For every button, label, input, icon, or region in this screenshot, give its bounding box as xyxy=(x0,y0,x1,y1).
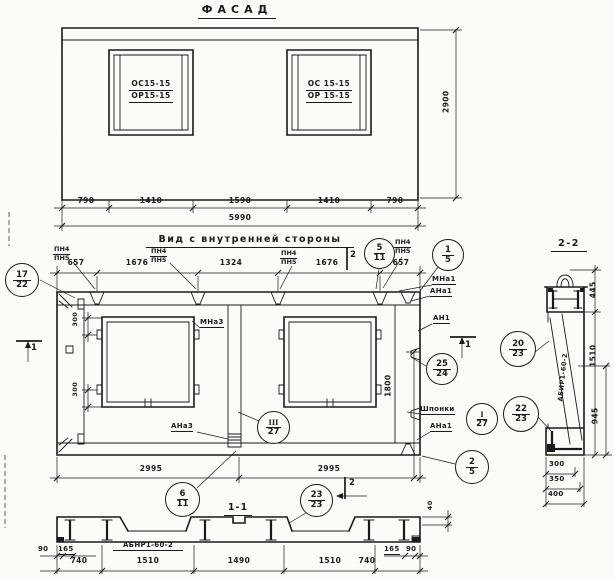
callout-bottom: 23 xyxy=(311,501,323,510)
callout-5-11: 5 11 xyxy=(364,238,395,269)
dim-90-right: 90 xyxy=(406,546,416,553)
facade-title: ФАСАД xyxy=(198,4,276,19)
label-ana3: АНа3 xyxy=(171,423,193,432)
cut-marker-2-bottom: 2 xyxy=(349,479,355,488)
callout-20-23: 20 23 xyxy=(500,331,536,367)
callout-17-22: 17 22 xyxy=(5,263,39,297)
margin-dashes xyxy=(5,212,9,528)
section-2-2-title: 2-2 xyxy=(551,239,587,252)
callout-bottom: 11 xyxy=(374,254,386,263)
callout-bottom: 27 xyxy=(476,420,488,429)
anchor-label-pn-2: ПН4 ПН5 xyxy=(150,248,167,265)
callout-top: 17 xyxy=(13,271,31,281)
dim-165-right: 165 xyxy=(384,546,400,555)
callout-top: 1 xyxy=(442,246,454,256)
callout-I-27: I 27 xyxy=(466,403,498,435)
callout-bottom: 23 xyxy=(512,350,524,359)
cut-marker-1-right: 1 xyxy=(465,341,471,350)
callout-bottom: 23 xyxy=(515,415,527,424)
callout-bottom: 24 xyxy=(436,370,448,379)
callout-bottom: 27 xyxy=(268,428,280,437)
inner-top-dim-4: 1676 xyxy=(312,259,342,267)
inner-top-dim-2: 1676 xyxy=(122,259,152,267)
callout-bottom: 22 xyxy=(16,281,28,290)
label-ana1-bottom: АНа1 xyxy=(430,423,452,432)
callout-bottom: 5 xyxy=(469,468,475,477)
anchor-label-pn-3: ПН4 ПН5 xyxy=(280,250,297,267)
inner-top-dim-1: 657 xyxy=(61,259,91,267)
callout-top: I xyxy=(477,410,486,420)
label-shponki: Шпонки xyxy=(420,406,455,415)
facade-dim-total: 5990 xyxy=(223,214,257,222)
dim-40: 40 xyxy=(427,495,434,515)
panel-drawing-sheet: ФАСАД Вид с внутренней стороны 1-1 2-2 О… xyxy=(0,0,614,579)
s11-dim-2: 1510 xyxy=(133,557,163,565)
inner-view-title: Вид с внутренней стороны xyxy=(146,235,354,248)
label-ana1-top: АНа1 xyxy=(430,288,452,297)
section-cut-bars xyxy=(16,248,476,499)
dim-90-left: 90 xyxy=(38,546,48,553)
product-code-1-1: АБНР1-60-2 xyxy=(113,542,183,551)
s22-dim-945: 945 xyxy=(591,402,599,430)
s22-dim-300: 300 xyxy=(549,461,565,468)
window-mark-right-bottom: ОР 15-15 xyxy=(306,91,352,103)
window-mark-right-top: ОС 15-15 xyxy=(306,79,352,91)
window-mark-right: ОС 15-15 ОР 15-15 xyxy=(302,79,356,103)
cut-marker-1-left: 1 xyxy=(31,344,37,353)
callout-1-5: 1 5 xyxy=(432,239,464,271)
callout-2-5: 2 5 xyxy=(455,450,489,484)
inner-bottom-dim-2: 2995 xyxy=(311,465,347,473)
facade-dim-1: 790 xyxy=(69,197,103,205)
label-an1: АН1 xyxy=(433,315,450,324)
pn-bottom: ПН5 xyxy=(281,259,296,267)
window-mark-left: ОС15-15 ОР15-15 xyxy=(124,79,178,103)
pn-bottom: ПН5 xyxy=(395,248,410,256)
label-mna1: МНа1 xyxy=(432,276,456,285)
callout-top: 22 xyxy=(512,405,530,415)
facade-dim-4: 1410 xyxy=(312,197,346,205)
facade-dim-2: 1410 xyxy=(134,197,168,205)
cut-marker-2-top: 2 xyxy=(350,251,356,260)
inner-bottom-dim-1: 2995 xyxy=(133,465,169,473)
facade-dim-3: 1590 xyxy=(223,197,257,205)
facade-dim-5: 790 xyxy=(378,197,412,205)
window-offset-dim-top: 300 xyxy=(72,304,79,334)
window-mark-left-bottom: ОР15-15 xyxy=(129,91,172,103)
pn-bottom: ПН5 xyxy=(151,257,166,265)
s22-dim-445: 445 xyxy=(589,276,597,304)
callout-top: 25 xyxy=(433,360,451,370)
callout-25-24: 25 24 xyxy=(426,353,458,385)
callout-bottom: 11 xyxy=(177,500,189,509)
anchor-label-pn-4: ПН4 ПН5 xyxy=(394,239,411,256)
callout-top: 2 xyxy=(466,458,478,468)
dim-165-left: 165 xyxy=(58,546,74,555)
s11-dim-5: 740 xyxy=(352,557,382,565)
inner-top-dim-3: 1324 xyxy=(216,259,246,267)
window-mark-left-top: ОС15-15 xyxy=(129,79,172,91)
inner-height-dim-1800: 1800 xyxy=(384,366,392,406)
callout-III-27: III 27 xyxy=(257,411,290,444)
s22-dim-400: 400 xyxy=(548,491,564,498)
s11-dim-3: 1490 xyxy=(224,557,254,565)
callout-23-23: 23 23 xyxy=(300,484,333,517)
dimension-ticks xyxy=(54,27,609,574)
callout-6-11: 6 11 xyxy=(165,482,200,517)
callout-bottom: 5 xyxy=(445,256,451,265)
s11-dim-1: 740 xyxy=(64,557,94,565)
s22-dim-1510: 1510 xyxy=(589,339,597,373)
window-offset-dim-bottom: 300 xyxy=(72,374,79,404)
callout-top: 20 xyxy=(509,340,527,350)
facade-dim-height: 2900 xyxy=(442,84,450,120)
s22-dim-350: 350 xyxy=(549,476,565,483)
section-1-1-title: 1-1 xyxy=(224,503,252,516)
callout-22-23: 22 23 xyxy=(503,396,539,432)
label-mna3: МНа3 xyxy=(200,319,224,328)
s11-dim-4: 1510 xyxy=(315,557,345,565)
